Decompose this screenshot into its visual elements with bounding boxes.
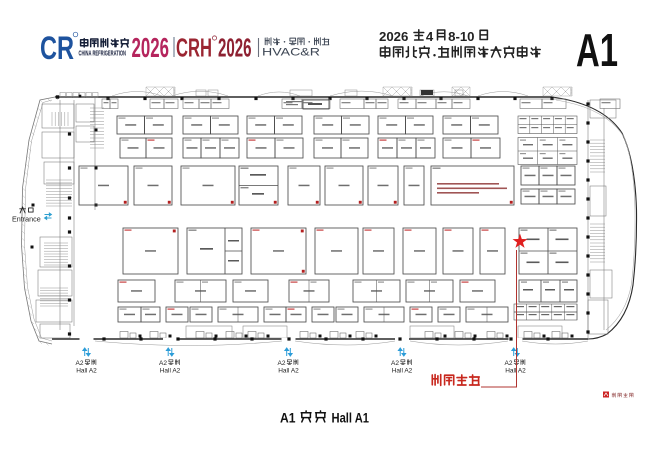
svg-text:8-10: 8-10 [448, 29, 474, 44]
svg-text:CHINA REFRIGERATION: CHINA REFRIGERATION [79, 48, 127, 57]
svg-text:Hall A1: Hall A1 [332, 410, 370, 426]
svg-text:CR: CR [40, 30, 74, 66]
svg-text:A1: A1 [280, 410, 296, 426]
svg-text:A2: A2 [159, 360, 167, 367]
svg-text:Hall A2: Hall A2 [76, 368, 97, 375]
svg-text:2026: 2026 [132, 32, 170, 63]
svg-text:A2: A2 [505, 360, 513, 367]
svg-text:A1: A1 [576, 24, 618, 76]
svg-text:Hall A2: Hall A2 [392, 368, 413, 375]
svg-text:2026: 2026 [379, 29, 408, 44]
svg-text:4: 4 [426, 29, 434, 44]
svg-text:Hall A2: Hall A2 [160, 368, 181, 375]
svg-text:HVAC&R: HVAC&R [262, 47, 320, 59]
svg-text:CRH: CRH [176, 33, 212, 63]
svg-text:2026: 2026 [218, 33, 252, 63]
svg-text:Hall A2: Hall A2 [278, 368, 299, 375]
svg-text:A2: A2 [391, 360, 399, 367]
svg-text:A2: A2 [76, 360, 84, 367]
svg-text:Entrance: Entrance [12, 215, 41, 224]
svg-text:Hall A2: Hall A2 [505, 368, 526, 375]
svg-text:A2: A2 [278, 360, 286, 367]
